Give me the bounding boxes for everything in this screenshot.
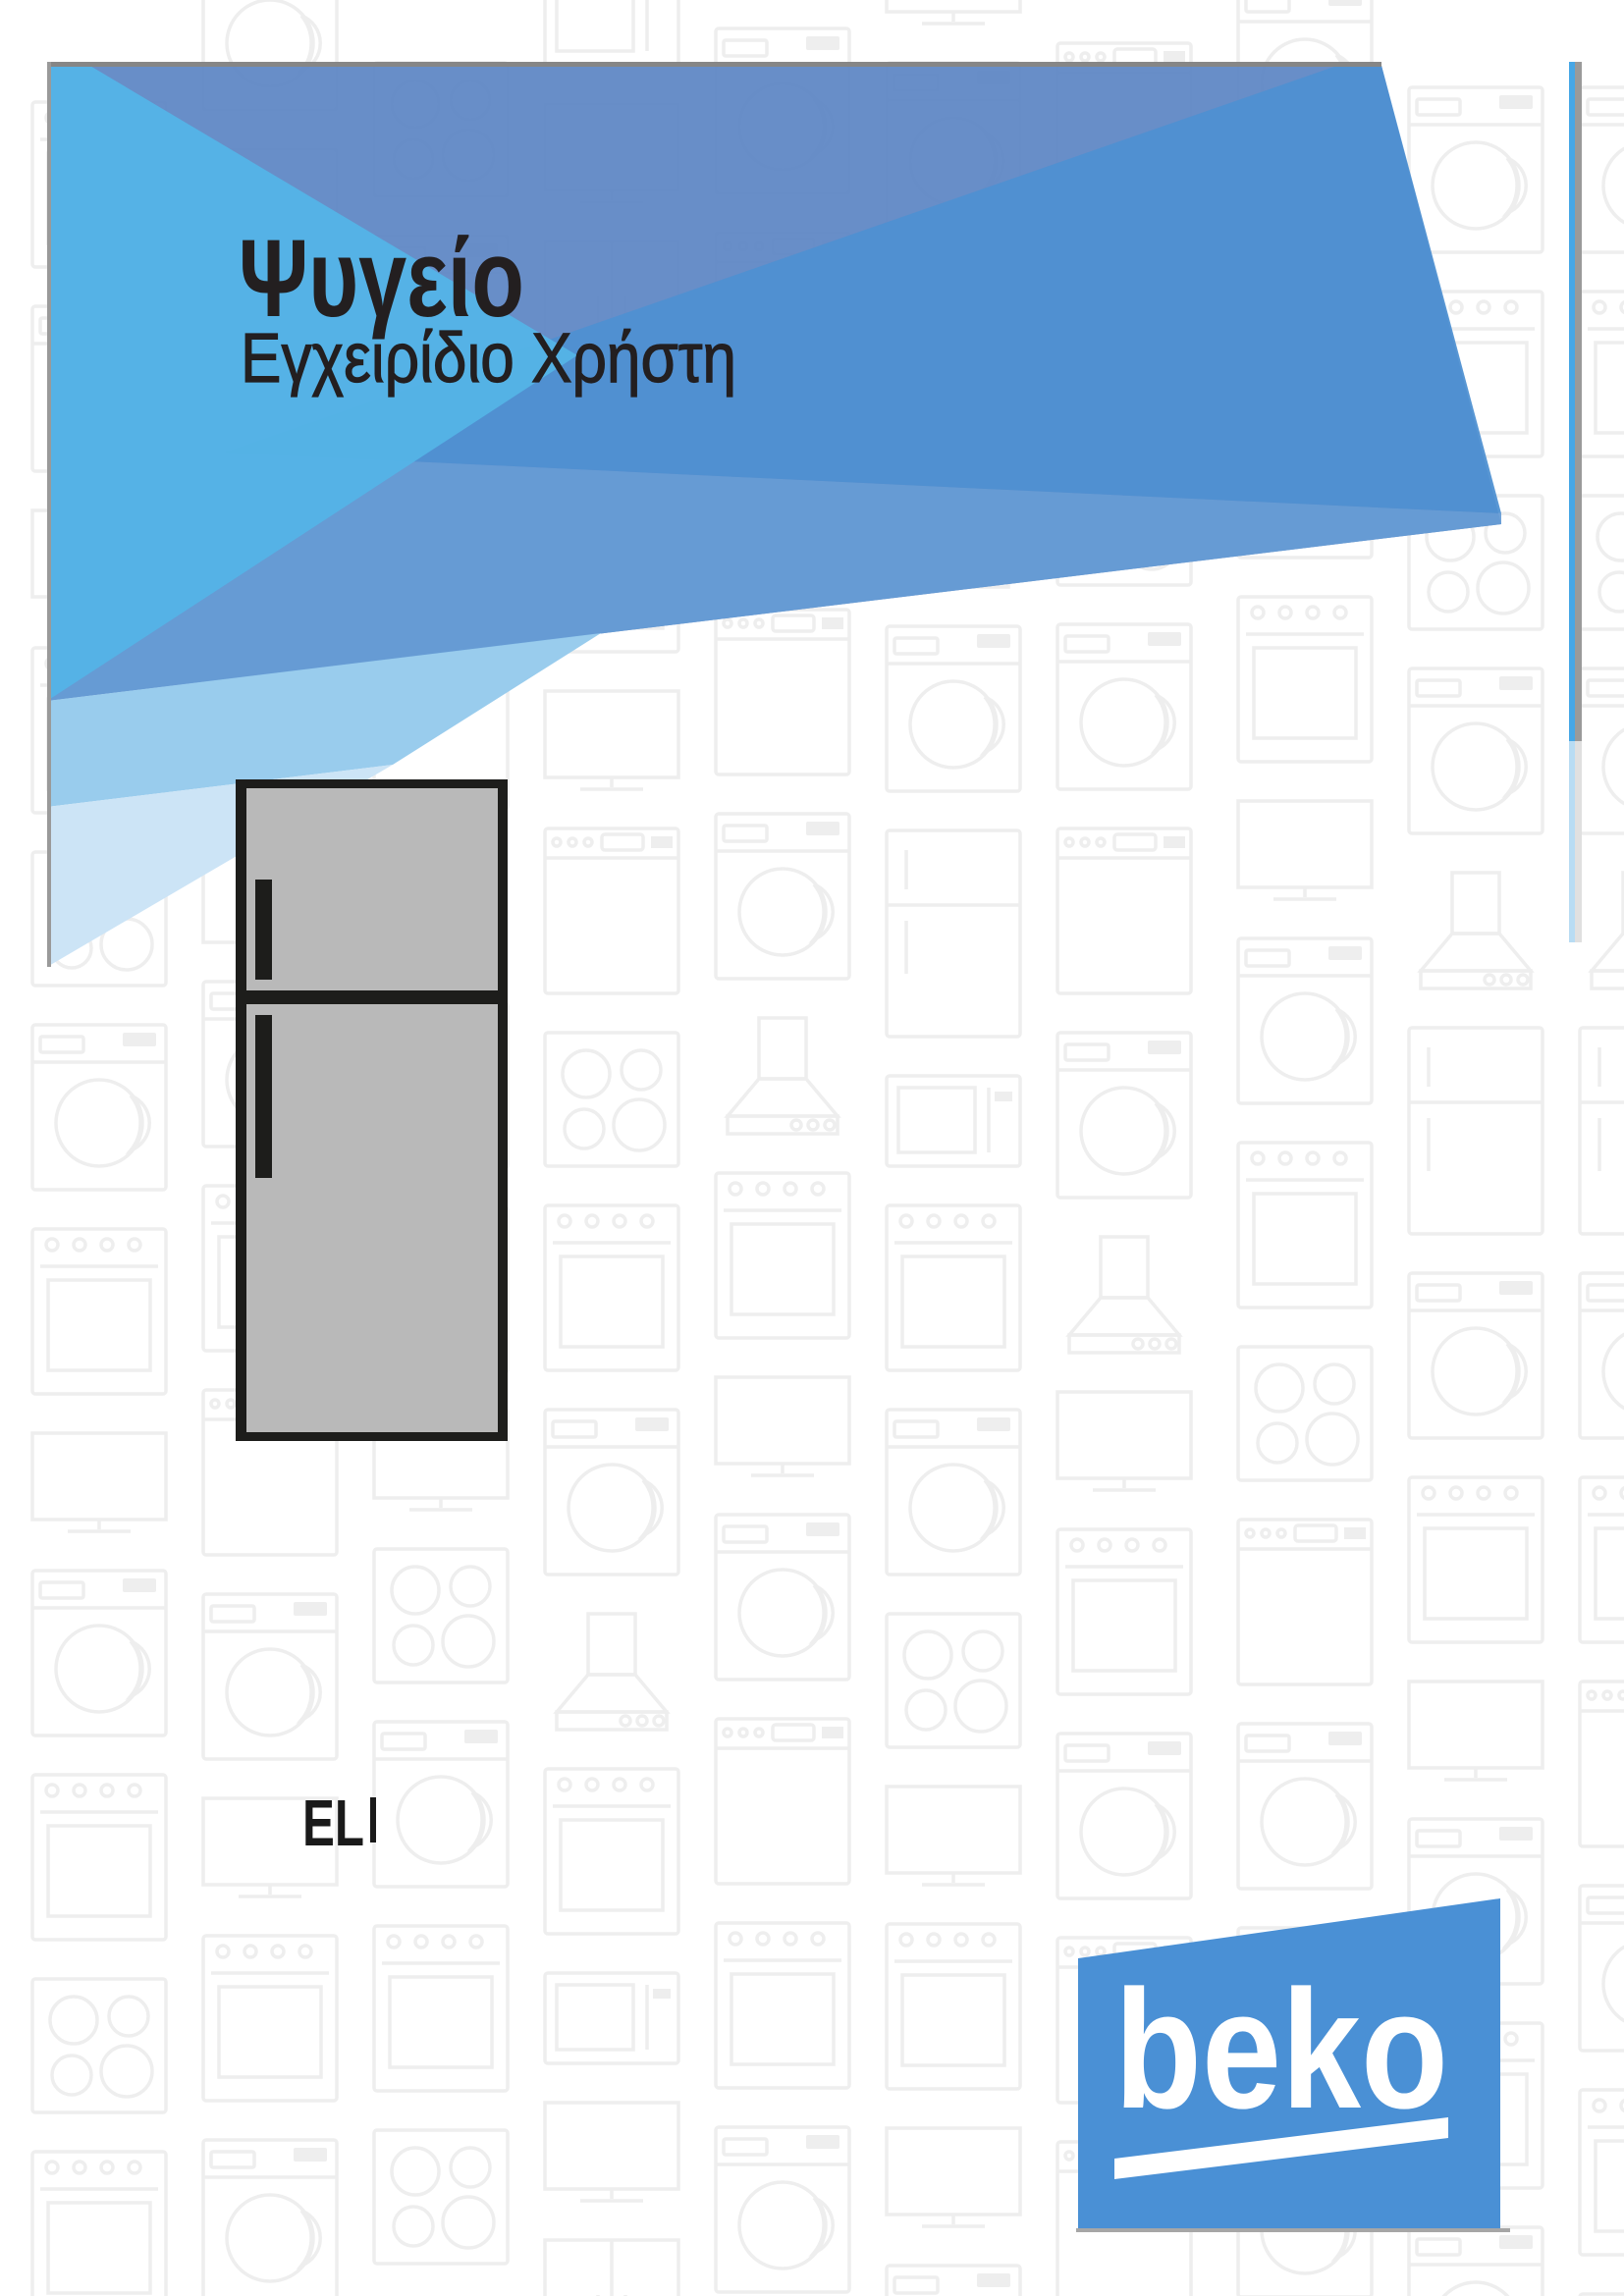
svg-text:EL: EL xyxy=(302,1787,364,1860)
svg-text:beko: beko xyxy=(1114,1955,1448,2144)
svg-text:Εγχειρίδιο Χρήστη: Εγχειρίδιο Χρήστη xyxy=(241,320,736,398)
